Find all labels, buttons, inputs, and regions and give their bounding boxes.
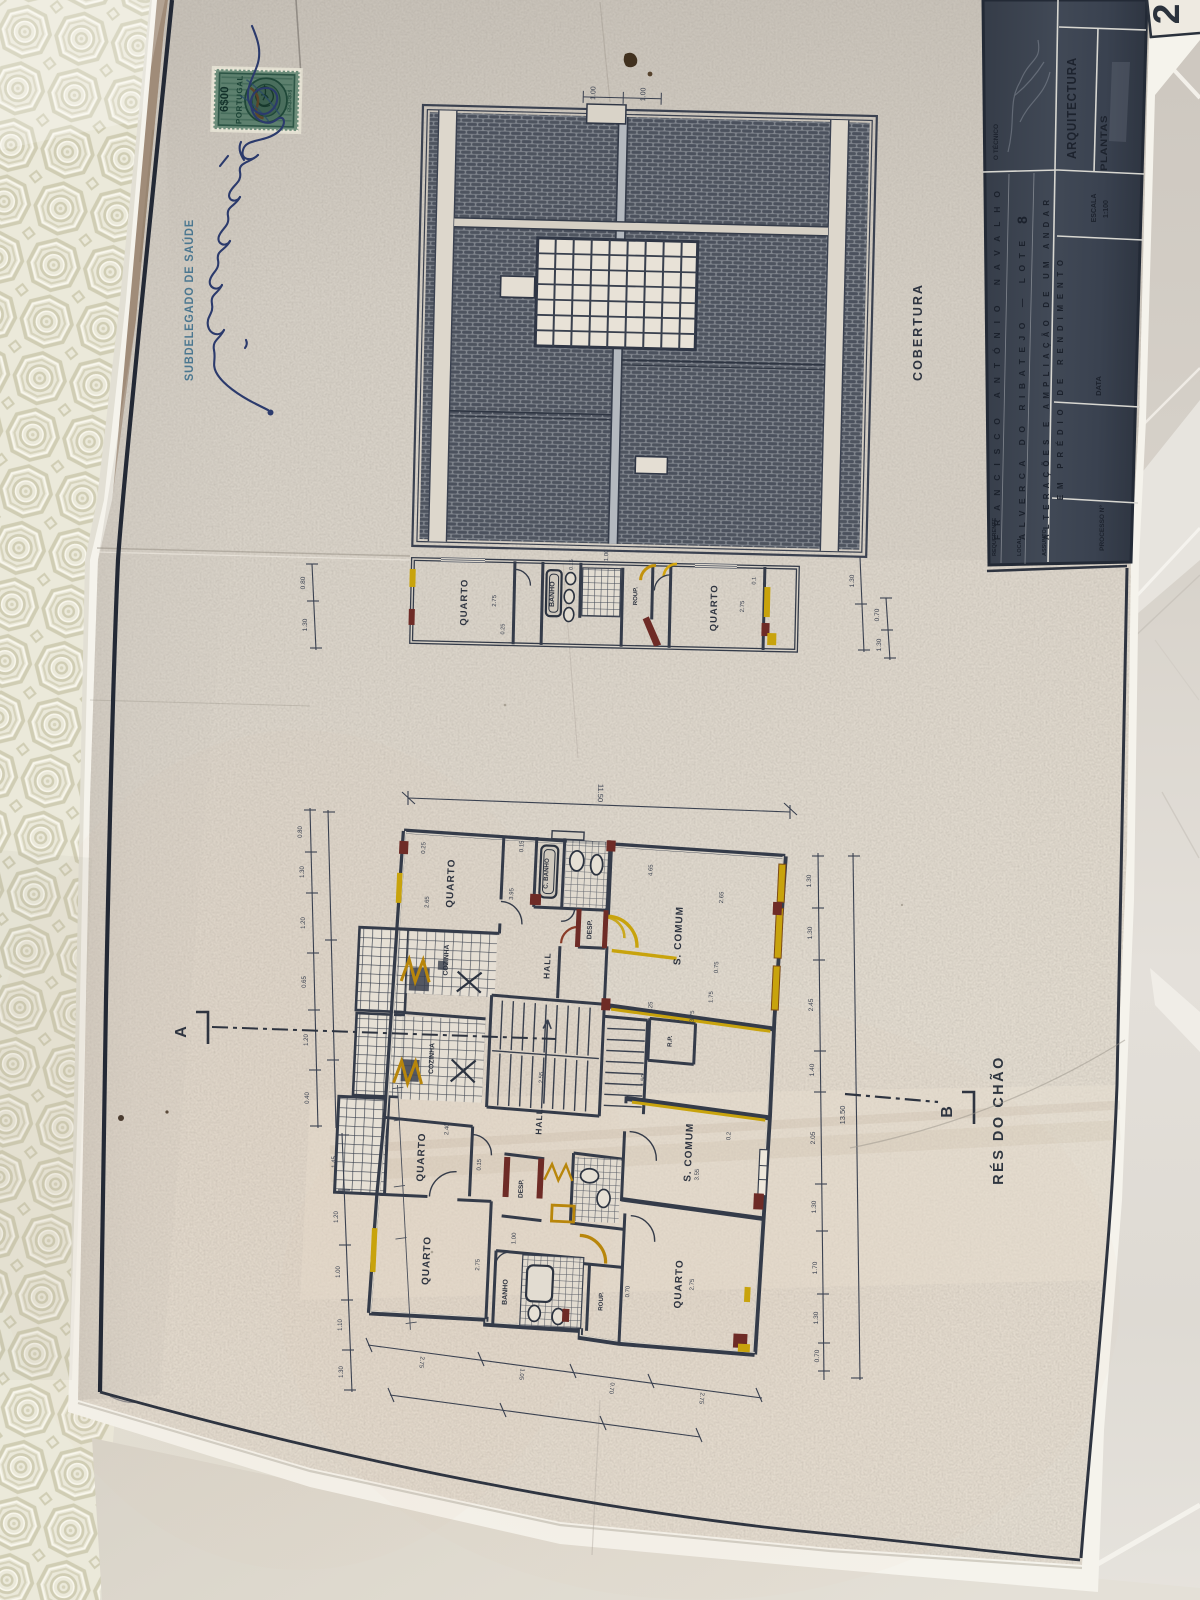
- svg-text:13.50: 13.50: [838, 1106, 847, 1125]
- svg-text:2.75: 2.75: [492, 594, 498, 606]
- svg-text:1.30: 1.30: [807, 926, 814, 939]
- svg-text:0.80: 0.80: [300, 576, 307, 589]
- svg-text:4.65: 4.65: [648, 864, 655, 877]
- svg-text:0.2: 0.2: [726, 1131, 732, 1140]
- svg-text:ESCALA: ESCALA: [1091, 194, 1098, 223]
- svg-text:3.55: 3.55: [694, 1168, 701, 1181]
- svg-text:COBERTURA: COBERTURA: [911, 283, 925, 381]
- svg-text:ARQUITECTURA: ARQUITECTURA: [1064, 57, 1079, 159]
- svg-text:1.30: 1.30: [876, 638, 883, 651]
- svg-text:1.10: 1.10: [338, 1319, 344, 1331]
- svg-text:1.20: 1.20: [334, 1211, 340, 1223]
- svg-text:2.45: 2.45: [808, 998, 815, 1011]
- svg-text:1.20: 1.20: [304, 1034, 310, 1046]
- svg-text:1.30: 1.30: [300, 866, 306, 878]
- svg-text:DATA: DATA: [1094, 376, 1103, 396]
- svg-text:2.05: 2.05: [810, 1131, 817, 1144]
- svg-text:HALL: HALL: [533, 1108, 544, 1135]
- svg-text:1.30: 1.30: [339, 1366, 345, 1378]
- svg-text:DESP.: DESP.: [586, 920, 594, 940]
- svg-text:SUBDELEGADO DE SAÚDE: SUBDELEGADO DE SAÚDE: [181, 219, 196, 381]
- svg-text:O TÉCNICO: O TÉCNICO: [991, 124, 1000, 160]
- svg-text:ROUP.: ROUP.: [633, 587, 639, 606]
- svg-text:1.50: 1.50: [641, 1074, 648, 1087]
- svg-text:PLANTAS: PLANTAS: [1099, 115, 1110, 171]
- svg-text:1.20: 1.20: [301, 917, 307, 929]
- svg-text:1.30: 1.30: [813, 1311, 820, 1324]
- svg-text:8: 8: [1014, 216, 1030, 224]
- svg-text:C. BANHO: C. BANHO: [543, 858, 551, 889]
- svg-text:PORTUGAL: PORTUGAL: [234, 75, 244, 124]
- svg-text:COZINHA: COZINHA: [428, 1043, 436, 1074]
- svg-text:0.40: 0.40: [305, 1092, 311, 1104]
- svg-text:ROUP.: ROUP.: [597, 1292, 605, 1311]
- svg-text:QUARTO: QUARTO: [420, 1236, 433, 1286]
- svg-text:2.40: 2.40: [444, 1123, 451, 1136]
- svg-text:3.75: 3.75: [690, 1010, 697, 1023]
- svg-text:0.15: 0.15: [519, 840, 526, 853]
- svg-text:2.65: 2.65: [719, 891, 726, 904]
- svg-text:PROCESSO Nº: PROCESSO Nº: [1099, 505, 1106, 551]
- svg-text:BANHO: BANHO: [549, 581, 557, 607]
- svg-text:1.45: 1.45: [332, 1156, 338, 1168]
- svg-text:3.95: 3.95: [509, 887, 516, 900]
- svg-text:0.15: 0.15: [569, 559, 575, 570]
- svg-text:1.40: 1.40: [809, 1063, 816, 1076]
- svg-text:QUARTO: QUARTO: [459, 579, 471, 626]
- svg-text:11.50: 11.50: [596, 784, 606, 803]
- svg-text:0.70: 0.70: [874, 608, 881, 621]
- svg-text:QUARTO: QUARTO: [445, 858, 458, 908]
- svg-text:1.30: 1.30: [811, 1200, 818, 1213]
- svg-text:R.P.: R.P.: [666, 1035, 674, 1047]
- svg-text:0.70: 0.70: [625, 1285, 632, 1298]
- svg-text:0.25: 0.25: [500, 624, 506, 635]
- svg-text:EM PRÉDIO DE RENDIMENTO: EM PRÉDIO DE RENDIMENTO: [1056, 260, 1065, 500]
- svg-text:1.00: 1.00: [336, 1266, 342, 1278]
- svg-text:RÉS DO CHÃO: RÉS DO CHÃO: [989, 1055, 1007, 1185]
- svg-text:2: 2: [1146, 4, 1187, 25]
- svg-text:0.25: 0.25: [421, 841, 428, 854]
- svg-text:2.75: 2.75: [740, 600, 746, 612]
- svg-text:COZINHA: COZINHA: [442, 944, 450, 975]
- svg-text:0.75: 0.75: [714, 961, 721, 974]
- svg-text:2.75: 2.75: [475, 1258, 482, 1271]
- svg-text:A: A: [173, 1026, 190, 1038]
- svg-text:ESCUDOS: ESCUDOS: [287, 90, 293, 112]
- svg-text:DESP.: DESP.: [517, 1179, 525, 1198]
- svg-text:1:100: 1:100: [1103, 200, 1110, 218]
- svg-text:1.00: 1.00: [590, 86, 597, 100]
- svg-text:QUARTO: QUARTO: [415, 1132, 428, 1182]
- svg-text:B: B: [939, 1106, 956, 1118]
- svg-text:2.75: 2.75: [689, 1278, 696, 1291]
- svg-text:0.1: 0.1: [752, 577, 758, 585]
- svg-text:1.00: 1.00: [511, 1232, 518, 1245]
- svg-text:1.75: 1.75: [709, 991, 716, 1004]
- svg-text:ASSUNTO: ASSUNTO: [1042, 528, 1048, 556]
- svg-text:0.80: 0.80: [298, 826, 304, 838]
- svg-text:0.70: 0.70: [814, 1349, 821, 1362]
- svg-text:1.70: 1.70: [812, 1261, 819, 1274]
- svg-text:QUARTO: QUARTO: [708, 584, 720, 631]
- svg-text:0.15: 0.15: [477, 1158, 484, 1171]
- svg-text:0.25: 0.25: [648, 1001, 655, 1014]
- svg-text:6$00: 6$00: [219, 86, 232, 112]
- svg-text:BANHO: BANHO: [502, 1279, 510, 1306]
- svg-text:HALL: HALL: [541, 952, 552, 979]
- svg-text:1.30: 1.30: [806, 874, 813, 887]
- svg-text:1.30: 1.30: [849, 574, 856, 587]
- svg-text:1.30: 1.30: [302, 618, 309, 631]
- svg-text:QUARTO: QUARTO: [673, 1259, 686, 1309]
- svg-text:2.65: 2.65: [425, 896, 432, 909]
- svg-text:1.00: 1.00: [640, 87, 647, 101]
- svg-text:0.65: 0.65: [302, 976, 308, 988]
- svg-text:2.55: 2.55: [539, 1071, 546, 1084]
- svg-text:1.00: 1.00: [604, 549, 610, 561]
